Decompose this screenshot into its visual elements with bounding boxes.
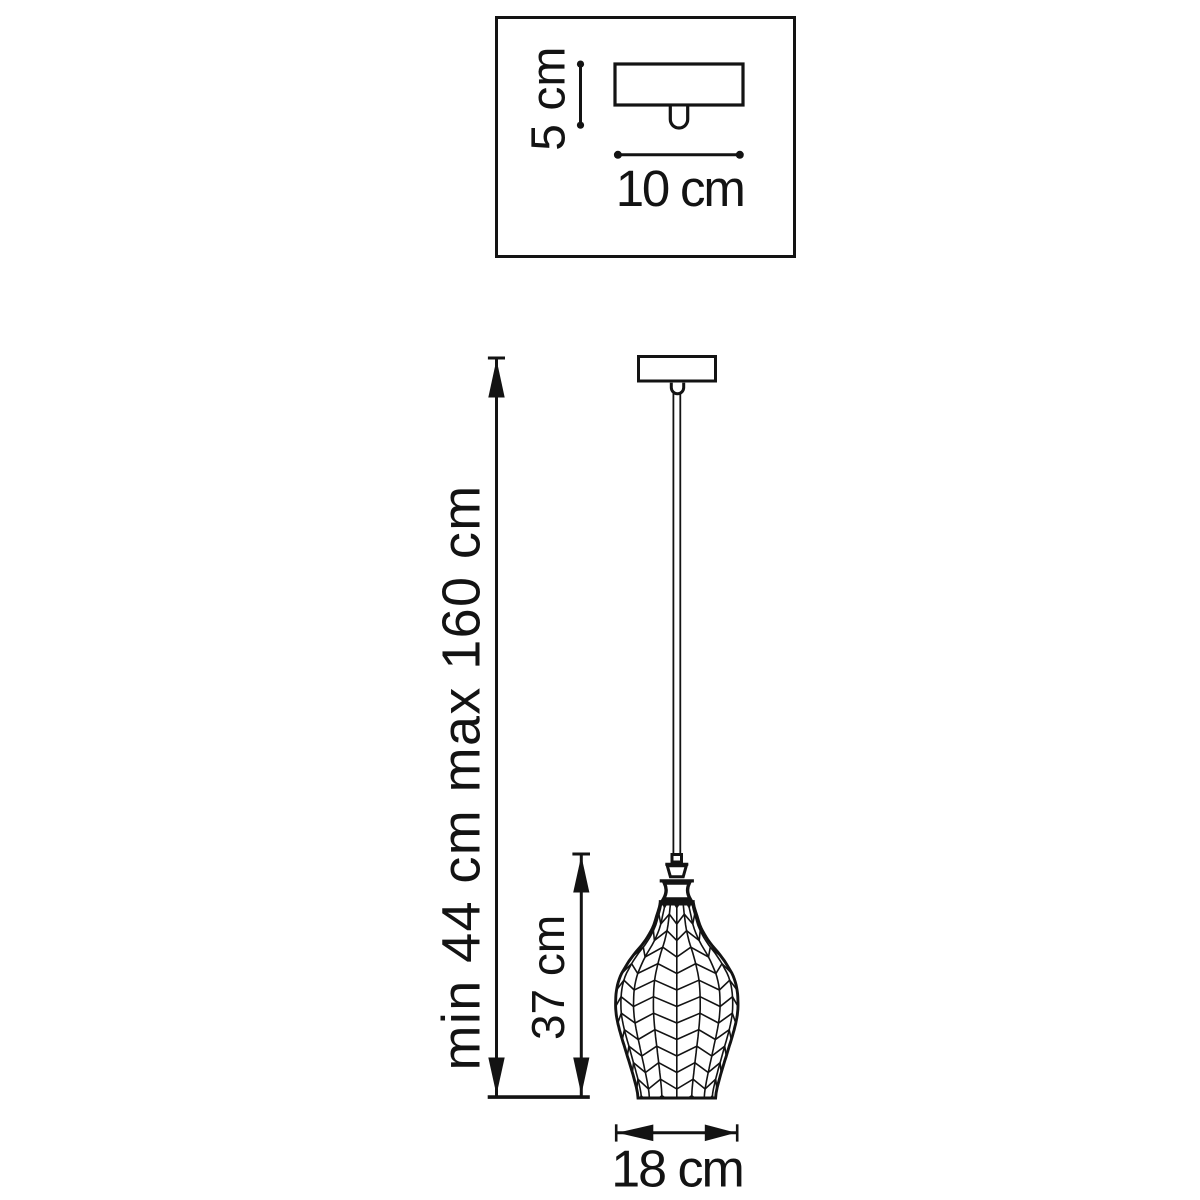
- svg-text:10 cm: 10 cm: [616, 160, 744, 217]
- svg-text:18 cm: 18 cm: [611, 1140, 743, 1198]
- svg-text:5 cm: 5 cm: [523, 47, 576, 151]
- svg-text:min 44 cm max 160 cm: min 44 cm max 160 cm: [432, 484, 492, 1070]
- svg-text:37 cm: 37 cm: [522, 915, 574, 1040]
